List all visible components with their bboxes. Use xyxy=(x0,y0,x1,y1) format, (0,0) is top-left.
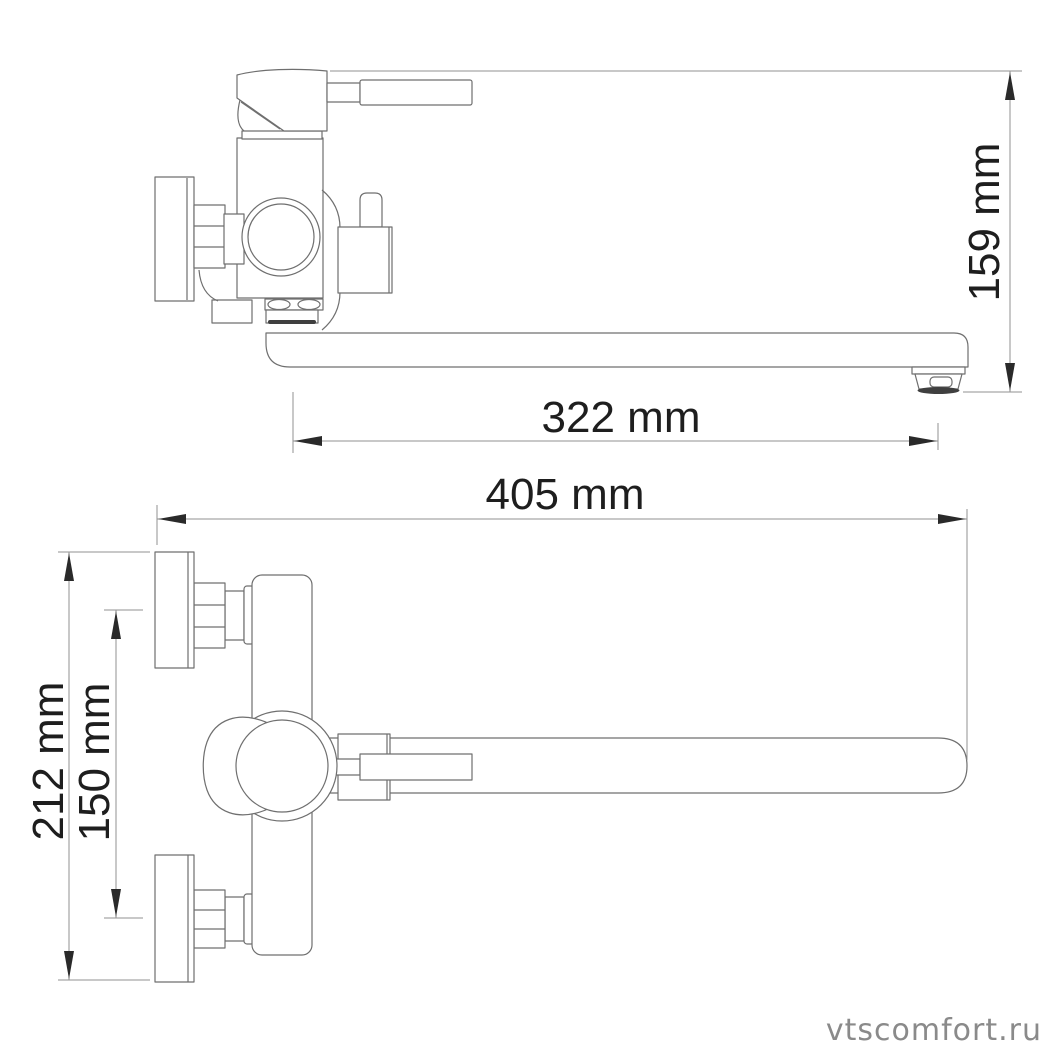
flange-hole-right xyxy=(298,300,320,310)
cartridge-ring-inner xyxy=(248,204,314,270)
inlet-washer-top xyxy=(225,591,244,640)
aerator-ring xyxy=(918,387,960,394)
wall-plate-side xyxy=(155,177,194,301)
body-lip xyxy=(242,131,322,139)
technical-drawing-page: 159 mm 322 mm 405 mm 212 mm 150 mm vtsco… xyxy=(0,0,1052,1052)
lower-inlet-pipe xyxy=(212,300,252,323)
site-watermark: vtscomfort.ru xyxy=(826,1013,1042,1048)
faucet-technical-drawing xyxy=(0,0,1052,1052)
diverter-knob xyxy=(360,193,382,227)
hex-nut-bottom xyxy=(194,890,225,948)
aerator-core xyxy=(930,377,952,387)
inlet-washer-bottom xyxy=(225,897,244,941)
cap-left-curve xyxy=(238,100,244,131)
dimension-label-212mm: 212 mm xyxy=(27,682,71,841)
lever-grip-side xyxy=(360,80,472,105)
hex-nut-side xyxy=(194,205,225,268)
side-view xyxy=(155,69,968,394)
dimension-label-159mm: 159 mm xyxy=(963,143,1007,302)
handle-cap xyxy=(237,69,327,131)
lever-grip-plan xyxy=(360,754,472,780)
flange-hole-left xyxy=(268,300,290,310)
plan-view xyxy=(155,552,967,982)
dimension-label-405mm: 405 mm xyxy=(486,473,645,517)
lever-neck-side xyxy=(327,83,360,102)
dimension-label-150mm: 150 mm xyxy=(73,683,117,842)
body-elbow xyxy=(199,270,218,301)
hex-nut-top xyxy=(194,583,225,648)
boss-arc-top xyxy=(322,190,340,228)
spout-side xyxy=(266,333,968,367)
boss-arc-bottom xyxy=(322,292,340,330)
flange-dark-band xyxy=(268,320,316,324)
nut-connector xyxy=(224,214,244,264)
diverter-body xyxy=(338,227,392,293)
aerator-neck xyxy=(912,367,965,374)
dimension-label-322mm: 322 mm xyxy=(542,396,701,440)
knob-circle xyxy=(236,720,328,812)
